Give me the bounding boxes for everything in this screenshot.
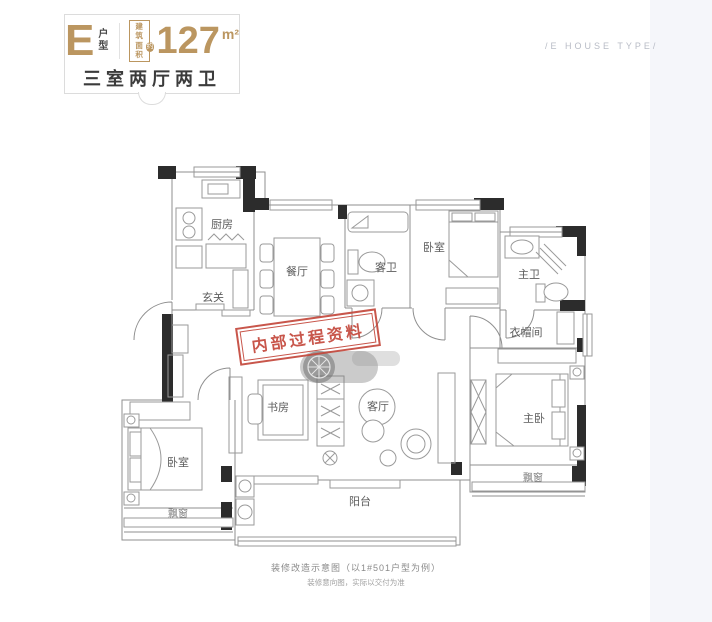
balcony-appliances xyxy=(236,476,254,525)
room-label-balcony: 阳台 xyxy=(349,494,371,508)
room-label-living: 客厅 xyxy=(367,399,389,413)
room-label-bedroom-left: 卧室 xyxy=(167,455,189,469)
left-bedroom-furniture xyxy=(124,414,202,505)
room-label-study: 书房 xyxy=(267,401,289,414)
developer-watermark xyxy=(300,351,400,383)
room-label-entry: 玄关 xyxy=(202,290,224,304)
bay-window-label-left: 飘窗 xyxy=(168,507,188,520)
second-bedroom-furniture xyxy=(449,211,498,277)
guest-bath-fixtures xyxy=(347,212,408,306)
room-label-master-bath: 主卫 xyxy=(518,268,540,281)
room-label-bedroom-top: 卧室 xyxy=(423,240,445,254)
floorplan-page: E 户型 建筑 面积 约 127 m² 三室两厅两卫 /E HOUSE TYPE… xyxy=(0,0,712,622)
room-label-kitchen: 厨房 xyxy=(211,218,233,231)
room-label-cloakroom: 衣帽间 xyxy=(510,325,543,339)
room-label-dining: 餐厅 xyxy=(286,264,308,278)
room-label-master-bedroom: 主卧 xyxy=(523,412,545,425)
footer-caption-primary: 装修改造示意图（以1#501户型为例） xyxy=(0,561,712,574)
bay-window-label-right: 飘窗 xyxy=(523,471,543,484)
footer-caption-secondary: 装修意向图，实际以交付为准 xyxy=(0,577,712,588)
room-label-guest-bath: 客卫 xyxy=(375,260,397,274)
living-room-furniture xyxy=(317,376,431,466)
